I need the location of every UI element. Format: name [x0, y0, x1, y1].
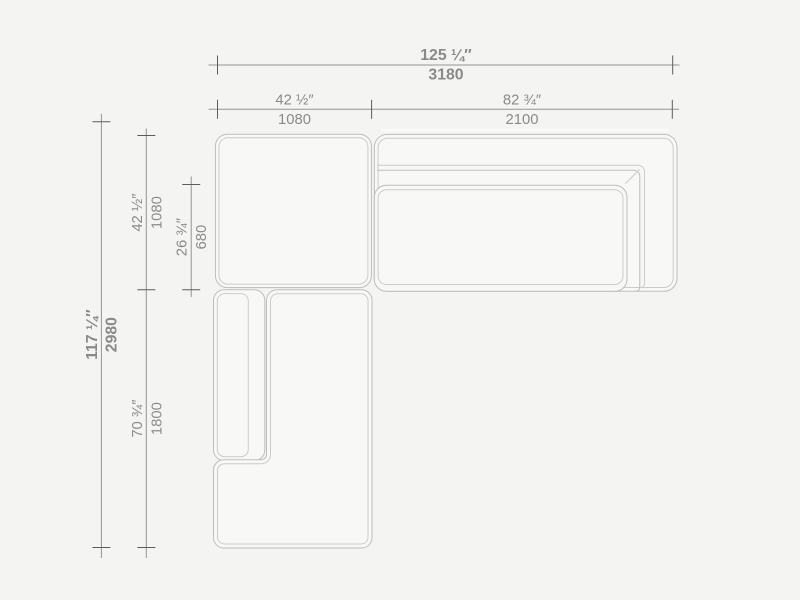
svg-text:1080: 1080 — [149, 196, 165, 229]
svg-text:42 ½″: 42 ½″ — [130, 194, 146, 232]
svg-text:1080: 1080 — [278, 112, 311, 128]
svg-text:2100: 2100 — [506, 112, 539, 128]
svg-text:125 ¼″: 125 ¼″ — [420, 47, 472, 64]
svg-text:1800: 1800 — [149, 402, 165, 435]
svg-text:680: 680 — [194, 225, 210, 250]
svg-text:42 ½″: 42 ½″ — [275, 92, 313, 108]
svg-text:117 ¼″: 117 ¼″ — [84, 309, 101, 360]
svg-text:3180: 3180 — [428, 67, 463, 84]
svg-text:2980: 2980 — [103, 317, 120, 352]
svg-text:26 ¾″: 26 ¾″ — [175, 218, 191, 256]
svg-text:70 ¾″: 70 ¾″ — [130, 400, 146, 438]
svg-text:82 ¾″: 82 ¾″ — [503, 92, 541, 108]
